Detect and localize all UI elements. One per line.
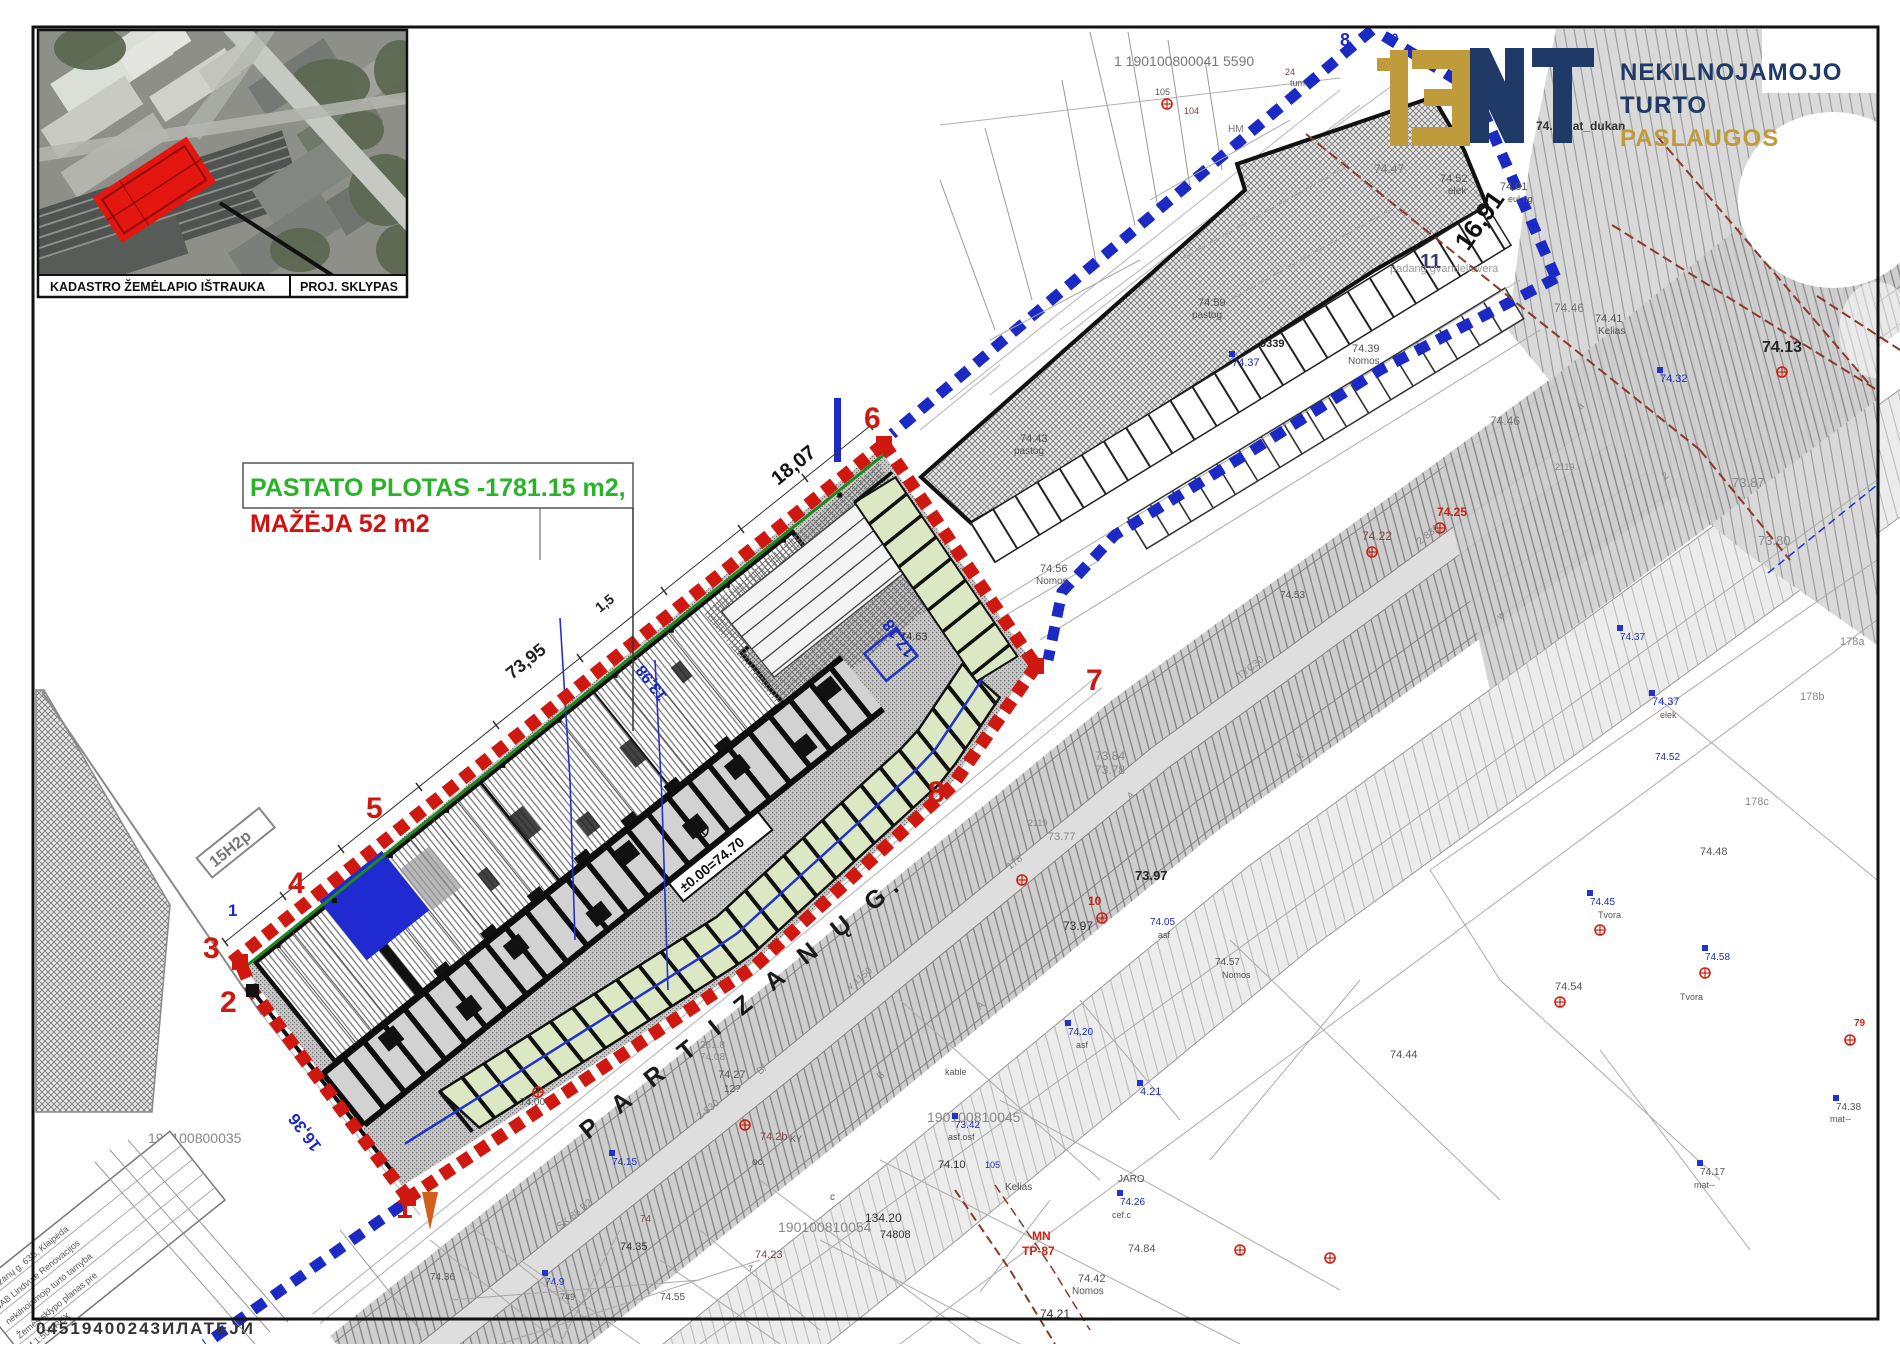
svg-text:74.52: 74.52 [1655, 752, 1680, 763]
svg-text:Nomos: Nomos [1072, 1286, 1104, 1297]
svg-text:74.37: 74.37 [1620, 632, 1645, 643]
svg-text:Nomos: Nomos [1036, 576, 1068, 587]
svg-text:74.26: 74.26 [1120, 1197, 1145, 1208]
svg-text:asf: asf [1076, 1040, 1089, 1050]
svg-text:MAŽĖJA 52 m2: MAŽĖJA 52 m2 [250, 508, 430, 538]
svg-text:74.05_at_dukan: 74.05_at_dukan [1536, 119, 1625, 133]
svg-text:elek: elek [1448, 186, 1467, 197]
svg-text:1 190100800041 5590: 1 190100800041 5590 [1114, 53, 1254, 69]
svg-text:261.8: 261.8 [700, 1040, 725, 1051]
svg-text:74.37: 74.37 [1652, 696, 1680, 708]
svg-text:7: 7 [1086, 664, 1103, 697]
svg-text:73.80: 73.80 [1758, 533, 1791, 548]
svg-text:PASLAUGOS: PASLAUGOS [1620, 125, 1779, 152]
svg-text:190100810054: 190100810054 [778, 1219, 872, 1235]
svg-text:74: 74 [640, 1214, 652, 1225]
svg-text:74.41: 74.41 [1595, 313, 1623, 325]
svg-text:74.37: 74.37 [1232, 357, 1260, 369]
svg-text:74.23: 74.23 [755, 1249, 783, 1261]
svg-text:elek: elek [1660, 710, 1677, 720]
svg-text:74.46: 74.46 [1554, 301, 1584, 315]
svg-text:74.25: 74.25 [1437, 505, 1467, 519]
svg-text:73.97: 73.97 [1063, 919, 1093, 933]
svg-text:73.97: 73.97 [1135, 868, 1168, 883]
svg-text:tum: tum [1290, 78, 1305, 88]
svg-text:PASTATO PLOTAS -1781.15 m2,: PASTATO PLOTAS -1781.15 m2, [250, 474, 626, 502]
svg-text:Tvora: Tvora [1598, 910, 1621, 920]
svg-text:73.84: 73.84 [1095, 749, 1125, 763]
svg-text:74.84: 74.84 [1128, 1243, 1156, 1255]
svg-text:74.17: 74.17 [1700, 1167, 1725, 1178]
svg-text:eul.ng: eul.ng [1508, 194, 1533, 204]
svg-text:178b: 178b [1800, 691, 1824, 703]
svg-text:74.57: 74.57 [1215, 957, 1240, 968]
svg-text:178c: 178c [1745, 796, 1769, 808]
svg-text:3: 3 [203, 932, 220, 965]
svg-text:asf.osf: asf.osf [948, 1132, 975, 1142]
svg-text:74.00: 74.00 [520, 1097, 545, 1108]
svg-text:105: 105 [1155, 87, 1170, 97]
svg-text:74.54: 74.54 [1555, 981, 1583, 993]
svg-text:73.77: 73.77 [1048, 831, 1076, 843]
svg-text:Kelias: Kelias [1005, 1182, 1032, 1193]
svg-text:74.9: 74.9 [545, 1277, 565, 1288]
svg-text:oc.: oc. [752, 1157, 765, 1168]
svg-text:74.22: 74.22 [1362, 529, 1392, 543]
svg-text:5: 5 [366, 792, 383, 825]
svg-text:74.05: 74.05 [1150, 917, 1175, 928]
svg-text:74.43: 74.43 [1020, 433, 1048, 445]
svg-text:74.27: 74.27 [718, 1069, 746, 1081]
svg-text:cef.c: cef.c [1112, 1210, 1132, 1220]
svg-text:74.39: 74.39 [1352, 343, 1380, 355]
svg-text:Kelias: Kelias [1598, 326, 1625, 337]
svg-text:6: 6 [864, 402, 881, 435]
svg-text:190100810045: 190100810045 [927, 1109, 1021, 1125]
svg-text:4: 4 [288, 867, 305, 900]
svg-text:2119: 2119 [1555, 462, 1574, 472]
svg-text:24: 24 [1285, 67, 1295, 77]
svg-text:74.20: 74.20 [1068, 1027, 1093, 1038]
svg-text:79: 79 [1854, 1018, 1866, 1029]
svg-text:KY: KY [790, 1134, 802, 1144]
svg-text:c: c [830, 1192, 835, 1203]
svg-text:74.36: 74.36 [430, 1272, 455, 1283]
svg-text:74.32: 74.32 [1660, 373, 1688, 385]
svg-text:MN: MN [1032, 1229, 1051, 1243]
svg-text:2119: 2119 [1028, 818, 1047, 828]
svg-text:4.21: 4.21 [1140, 1086, 1161, 1098]
svg-text:74.47: 74.47 [1374, 162, 1404, 176]
svg-text:pastog: pastog [1192, 310, 1222, 321]
svg-text:Nomos: Nomos [1348, 356, 1380, 367]
svg-text:8: 8 [1340, 30, 1350, 50]
svg-text:178a: 178a [1840, 636, 1865, 648]
svg-text:74.08: 74.08 [700, 1052, 725, 1063]
svg-text:74.2b: 74.2b [760, 1131, 788, 1143]
svg-text:mat--: mat-- [1830, 1114, 1851, 1124]
svg-text:74.52: 74.52 [1440, 173, 1468, 185]
svg-text:JARO: JARO [1118, 1174, 1145, 1185]
svg-text:74.58: 74.58 [1705, 952, 1730, 963]
svg-text:104: 104 [1184, 106, 1199, 116]
svg-text:9339: 9339 [1260, 338, 1284, 350]
svg-text:pastog: pastog [1014, 446, 1044, 457]
svg-text:Tvora: Tvora [1680, 992, 1703, 1002]
svg-text:TURTO: TURTO [1620, 92, 1707, 119]
svg-text:74.38: 74.38 [1836, 1102, 1861, 1113]
svg-text:74.44: 74.44 [1390, 1049, 1418, 1061]
svg-text:73.78: 73.78 [1095, 763, 1125, 777]
svg-text:04519400243ИЛАТЕЈИ: 04519400243ИЛАТЕЈИ [36, 1319, 255, 1338]
svg-text:74.59: 74.59 [1198, 297, 1226, 309]
svg-text:12?: 12? [724, 1084, 741, 1095]
svg-text:74.55: 74.55 [660, 1292, 685, 1303]
svg-text:KADASTRO ŽEMĖLAPIO IŠTRAUKA: KADASTRO ŽEMĖLAPIO IŠTRAUKA [50, 279, 265, 294]
svg-text:PROJ. SKLYPAS: PROJ. SKLYPAS [300, 280, 398, 294]
svg-text:74.42: 74.42 [1078, 1273, 1106, 1285]
svg-text:TP-87: TP-87 [1022, 1244, 1055, 1258]
svg-text:74.63: 74.63 [900, 631, 928, 643]
svg-text:Nomos: Nomos [1222, 970, 1251, 980]
svg-text:1: 1 [228, 901, 237, 920]
svg-text:mat--: mat-- [1694, 1180, 1715, 1190]
svg-text:NEKILNOJAMOJO: NEKILNOJAMOJO [1620, 59, 1842, 86]
svg-text:74.48: 74.48 [1700, 846, 1728, 858]
svg-text:73.87: 73.87 [1732, 475, 1765, 490]
svg-text:10: 10 [1088, 894, 1102, 908]
svg-text:105: 105 [985, 1160, 1000, 1170]
svg-text:8: 8 [928, 776, 945, 809]
svg-text:asf: asf [1158, 930, 1171, 940]
svg-text:74808: 74808 [880, 1229, 911, 1241]
svg-text:padang gvandeliovera: padang gvandeliovera [1390, 263, 1499, 275]
svg-text:2: 2 [220, 986, 237, 1019]
svg-text:74.01: 74.01 [1500, 181, 1528, 193]
svg-text:HM: HM [1228, 124, 1244, 135]
svg-text:74.10: 74.10 [938, 1159, 966, 1171]
svg-text:74.35: 74.35 [620, 1241, 648, 1253]
svg-text:74.13: 74.13 [1762, 339, 1802, 356]
svg-text:74.46: 74.46 [1490, 414, 1520, 428]
svg-text:74.15: 74.15 [612, 1157, 637, 1168]
svg-text:10: 10 [1385, 31, 1399, 45]
svg-text:74.45: 74.45 [1590, 897, 1615, 908]
svg-text:kable: kable [945, 1067, 967, 1077]
svg-text:1: 1 [396, 1192, 413, 1225]
svg-text:74.53: 74.53 [1280, 590, 1305, 601]
svg-text:74.56: 74.56 [1040, 563, 1068, 575]
